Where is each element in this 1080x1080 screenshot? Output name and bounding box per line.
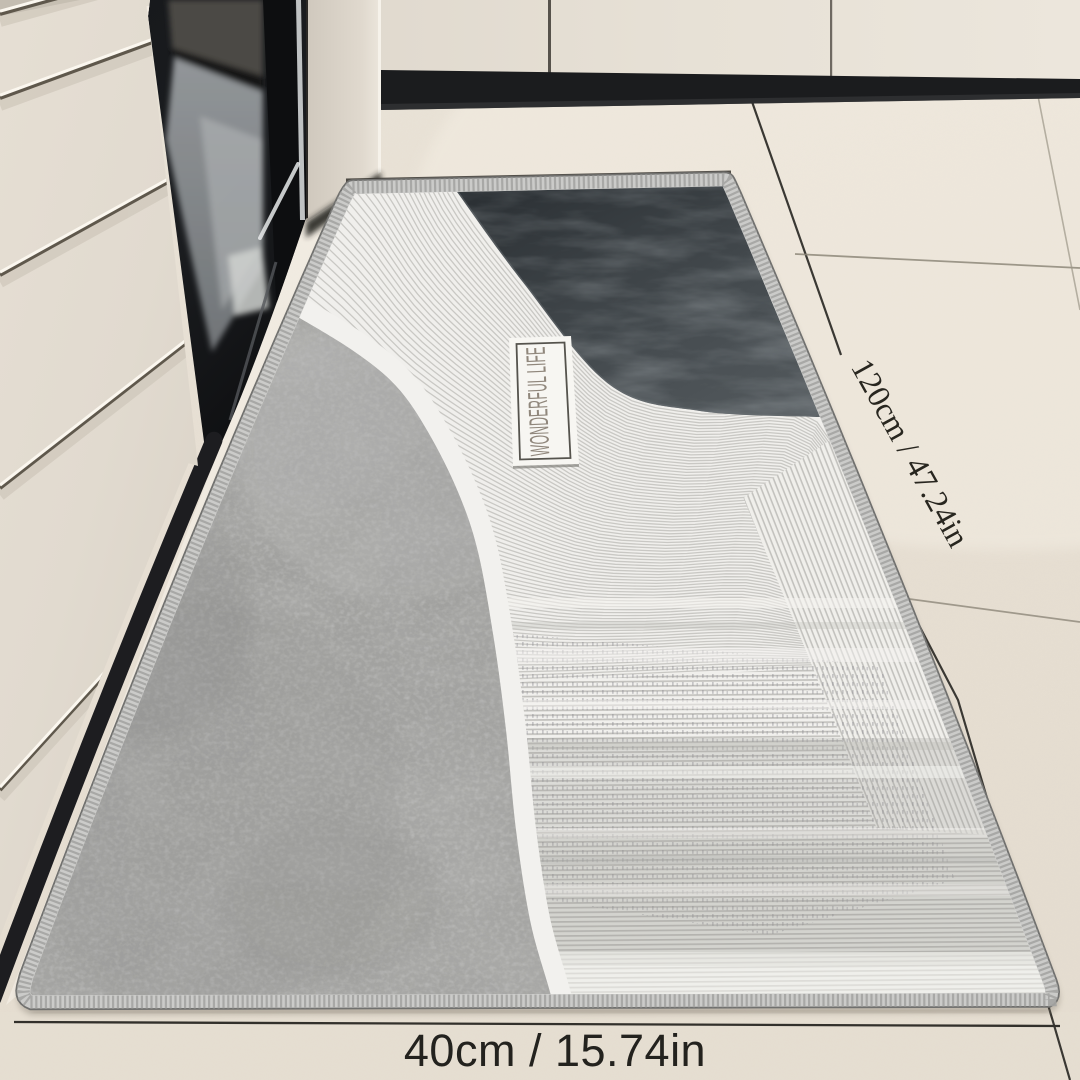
svg-text:40cm / 15.74in: 40cm / 15.74in [404,1025,706,1076]
svg-text:WONDERFUL LIFE: WONDERFUL LIFE [521,346,555,457]
